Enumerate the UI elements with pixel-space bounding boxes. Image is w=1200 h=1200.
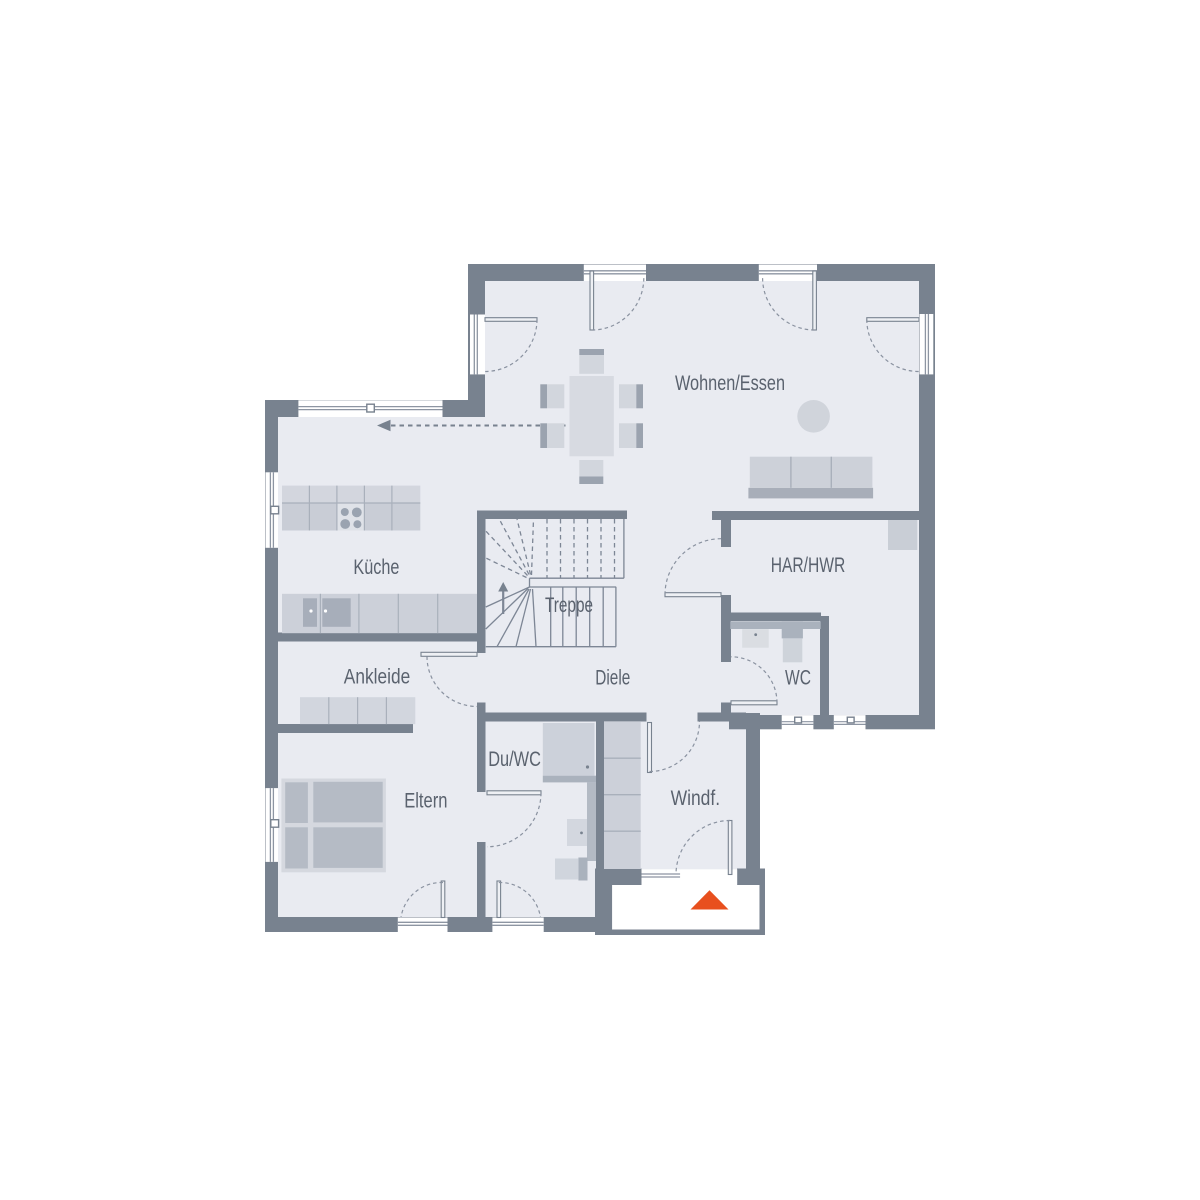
svg-text:WC: WC	[785, 667, 811, 690]
svg-text:Du/WC: Du/WC	[488, 748, 541, 771]
svg-text:HAR/HWR: HAR/HWR	[771, 554, 846, 577]
svg-text:Eltern: Eltern	[404, 790, 447, 813]
svg-text:Treppe: Treppe	[545, 594, 593, 617]
svg-text:Küche: Küche	[353, 556, 399, 579]
svg-text:Ankleide: Ankleide	[344, 666, 410, 689]
svg-text:Diele: Diele	[595, 667, 630, 690]
svg-text:Wohnen/Essen: Wohnen/Essen	[675, 372, 785, 395]
svg-text:Windf.: Windf.	[671, 787, 721, 810]
